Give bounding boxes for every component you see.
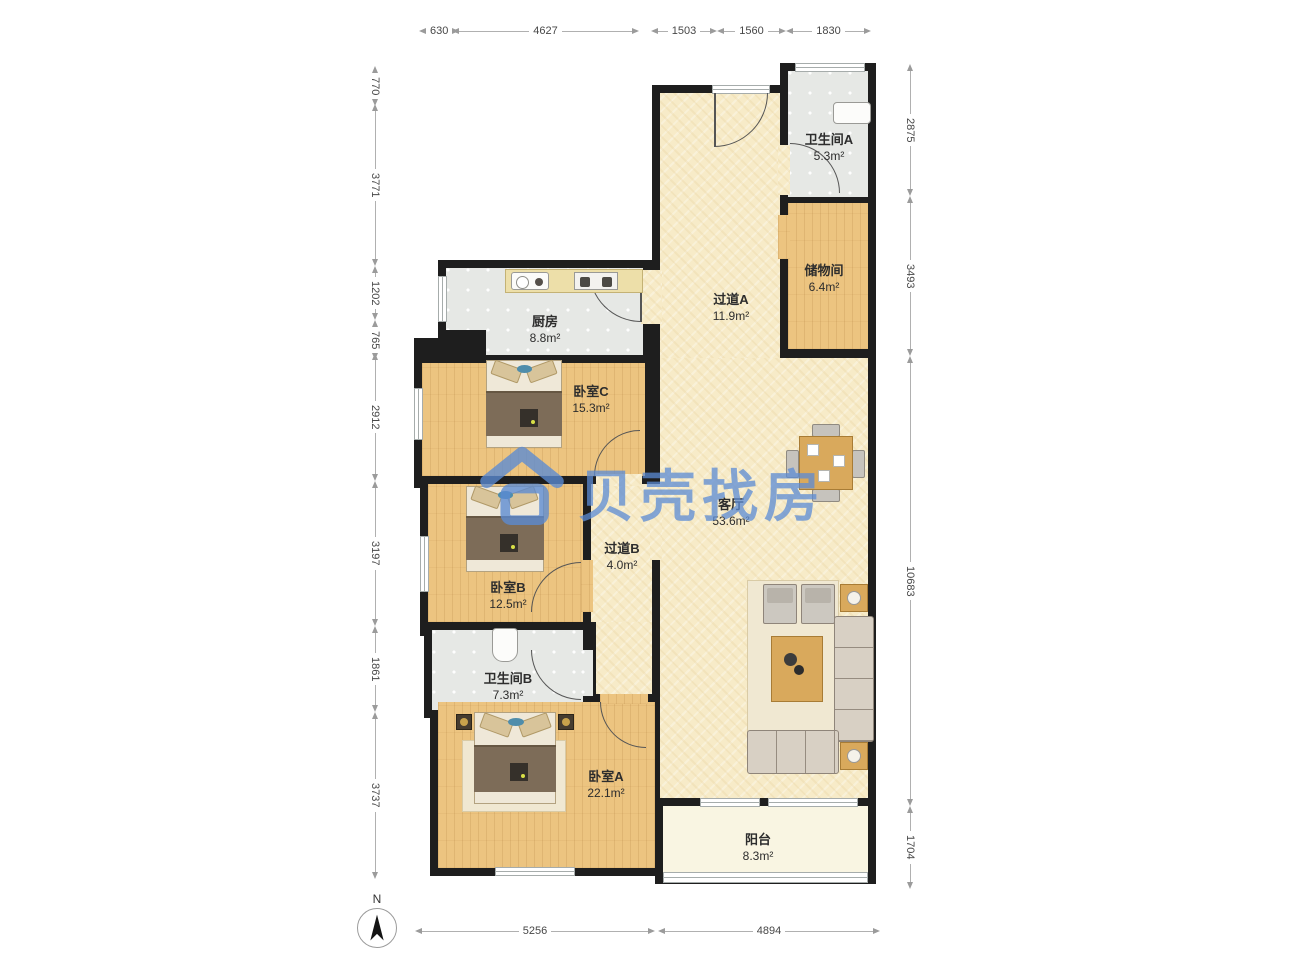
bedroom-b-bed-icon — [466, 486, 544, 572]
room-name: 卧室B — [489, 580, 526, 597]
coffee-table-icon — [771, 636, 823, 702]
dim-right-0: 2875 — [903, 64, 917, 196]
room-area: 12.5m² — [489, 597, 526, 613]
room-area: 53.6m² — [712, 514, 749, 530]
door-opening — [581, 560, 593, 612]
side-table-icon — [840, 584, 868, 612]
bed-tray-icon — [510, 763, 528, 781]
dim-arrow — [419, 28, 426, 34]
dim-left-1: 3771 — [368, 104, 382, 266]
nightstand-icon — [558, 714, 574, 730]
room-label-bedroom-b: 卧室B 12.5m² — [489, 580, 526, 612]
loveseat-icon — [747, 730, 839, 774]
room-area: 22.1m² — [587, 786, 624, 802]
dim-value: 4894 — [753, 925, 785, 938]
pillow-icon — [479, 712, 513, 737]
north-needle-icon — [362, 913, 392, 943]
entry-door-leaf — [714, 93, 716, 147]
window — [795, 63, 865, 72]
cushion-icon — [498, 491, 513, 499]
dim-top-4: 1830 — [786, 24, 871, 38]
room-floor-hallway-b-ext — [596, 622, 652, 694]
room-label-storage: 储物间 6.4m² — [804, 263, 843, 295]
window — [414, 388, 423, 440]
room-area: 15.3m² — [572, 401, 609, 417]
kitchen-stove-icon — [574, 272, 618, 290]
dim-left-6: 1861 — [368, 626, 382, 712]
dining-table-icon — [799, 436, 853, 490]
dining-chair-icon — [852, 450, 865, 478]
room-area: 8.3m² — [743, 849, 774, 865]
room-name: 阳台 — [743, 832, 774, 849]
room-name: 过道A — [713, 292, 749, 309]
room-name: 储物间 — [804, 263, 843, 280]
sofa-icon — [834, 616, 874, 742]
dim-value: 1202 — [369, 277, 381, 309]
dim-value: 3197 — [369, 537, 381, 569]
room-label-living: 客厅 53.6m² — [712, 497, 749, 529]
bedroom-a-bed-icon — [474, 712, 556, 804]
dim-value: 1503 — [668, 25, 700, 38]
bed-tray-icon — [520, 409, 538, 427]
dim-value: 4627 — [529, 25, 561, 38]
room-label-hallway-a: 过道A 11.9m² — [713, 292, 749, 324]
dim-top-3: 1560 — [717, 24, 786, 38]
balcony-glass-rail — [663, 872, 868, 883]
dim-value: 3737 — [369, 779, 381, 811]
plate-icon — [818, 470, 830, 482]
dim-bottom-0: 5256 — [415, 924, 655, 938]
room-area: 8.8m² — [530, 331, 561, 347]
dim-left-2: 1202 — [368, 266, 382, 320]
dim-right-1: 3493 — [903, 196, 917, 356]
dim-value: 3771 — [369, 169, 381, 201]
dim-right-2: 10683 — [903, 356, 917, 806]
dim-value: 10683 — [904, 562, 916, 601]
room-area: 6.4m² — [804, 280, 843, 296]
side-table-icon — [840, 742, 868, 770]
floorplan-canvas: 卫生间A 5.3m² 储物间 6.4m² 过道A 11.9m² 厨房 8.8m²… — [0, 0, 1290, 959]
nightstand-icon — [456, 714, 472, 730]
room-name: 卫生间B — [484, 671, 532, 688]
room-name: 卧室A — [587, 769, 624, 786]
bed-tray-icon — [500, 534, 518, 552]
dim-value: 5256 — [519, 925, 551, 938]
bedroom-c-bed-icon — [486, 360, 562, 448]
room-name: 客厅 — [712, 497, 749, 514]
dim-bottom-1: 4894 — [658, 924, 880, 938]
window — [420, 536, 429, 592]
dining-chair-icon — [812, 489, 840, 502]
room-label-kitchen: 厨房 8.8m² — [530, 314, 561, 346]
dim-left-4: 2912 — [368, 353, 382, 481]
pillow-icon — [507, 486, 540, 510]
armchair-icon — [801, 584, 835, 624]
dim-left-3: 765 — [368, 320, 382, 353]
dining-chair-icon — [786, 450, 799, 478]
room-area: 4.0m² — [604, 558, 639, 574]
dim-top-1: 4627 — [452, 24, 639, 38]
dim-right-3: 1704 — [903, 806, 917, 889]
dim-top-0: 630 — [419, 24, 452, 38]
dim-value: 1704 — [904, 831, 916, 863]
dim-value: 630 — [426, 25, 452, 38]
room-label-hallway-b: 过道B 4.0m² — [604, 541, 639, 573]
dim-value: 2875 — [904, 114, 916, 146]
room-name: 卧室C — [572, 384, 609, 401]
bathroom-b-toilet-icon — [492, 628, 518, 662]
door-opening — [641, 270, 662, 324]
dim-value: 1560 — [735, 25, 767, 38]
dim-value: 770 — [369, 73, 381, 99]
dim-value: 1861 — [369, 653, 381, 685]
dim-left-5: 3197 — [368, 481, 382, 626]
dim-value: 2912 — [369, 401, 381, 433]
room-name: 卫生间A — [805, 132, 853, 149]
dim-value: 3493 — [904, 260, 916, 292]
door-opening — [650, 484, 662, 560]
pillow-icon — [490, 360, 522, 384]
north-compass: N — [357, 892, 397, 948]
dim-left-0: 770 — [368, 66, 382, 104]
door-opening — [778, 215, 790, 259]
room-area: 5.3m² — [805, 149, 853, 165]
plate-icon — [807, 444, 819, 456]
room-label-bedroom-c: 卧室C 15.3m² — [572, 384, 609, 416]
cushion-icon — [508, 718, 524, 726]
room-label-bathroom-b: 卫生间B 7.3m² — [484, 671, 532, 703]
room-area: 11.9m² — [713, 309, 749, 325]
window — [768, 798, 858, 807]
dim-top-2: 1503 — [651, 24, 717, 38]
room-label-balcony: 阳台 8.3m² — [743, 832, 774, 864]
armchair-icon — [763, 584, 797, 624]
dim-value: 765 — [369, 327, 381, 353]
plate-icon — [833, 455, 845, 467]
window — [495, 867, 575, 876]
room-name: 过道B — [604, 541, 639, 558]
room-label-bathroom-a: 卫生间A 5.3m² — [805, 132, 853, 164]
room-area: 7.3m² — [484, 688, 532, 704]
room-label-bedroom-a: 卧室A 22.1m² — [587, 769, 624, 801]
kitchen-sink-icon — [511, 272, 549, 290]
door-opening — [581, 650, 593, 696]
bathroom-a-basin-icon — [833, 102, 871, 124]
dim-value: 1830 — [812, 25, 844, 38]
pillow-icon — [526, 360, 558, 384]
dim-left-7: 3737 — [368, 712, 382, 879]
window — [700, 798, 760, 807]
north-label: N — [357, 892, 397, 906]
pillow-icon — [471, 486, 504, 510]
wall-segment — [438, 330, 486, 363]
window — [438, 276, 447, 322]
room-name: 厨房 — [530, 314, 561, 331]
compass-circle-icon — [357, 908, 397, 948]
door-opening — [778, 145, 790, 195]
